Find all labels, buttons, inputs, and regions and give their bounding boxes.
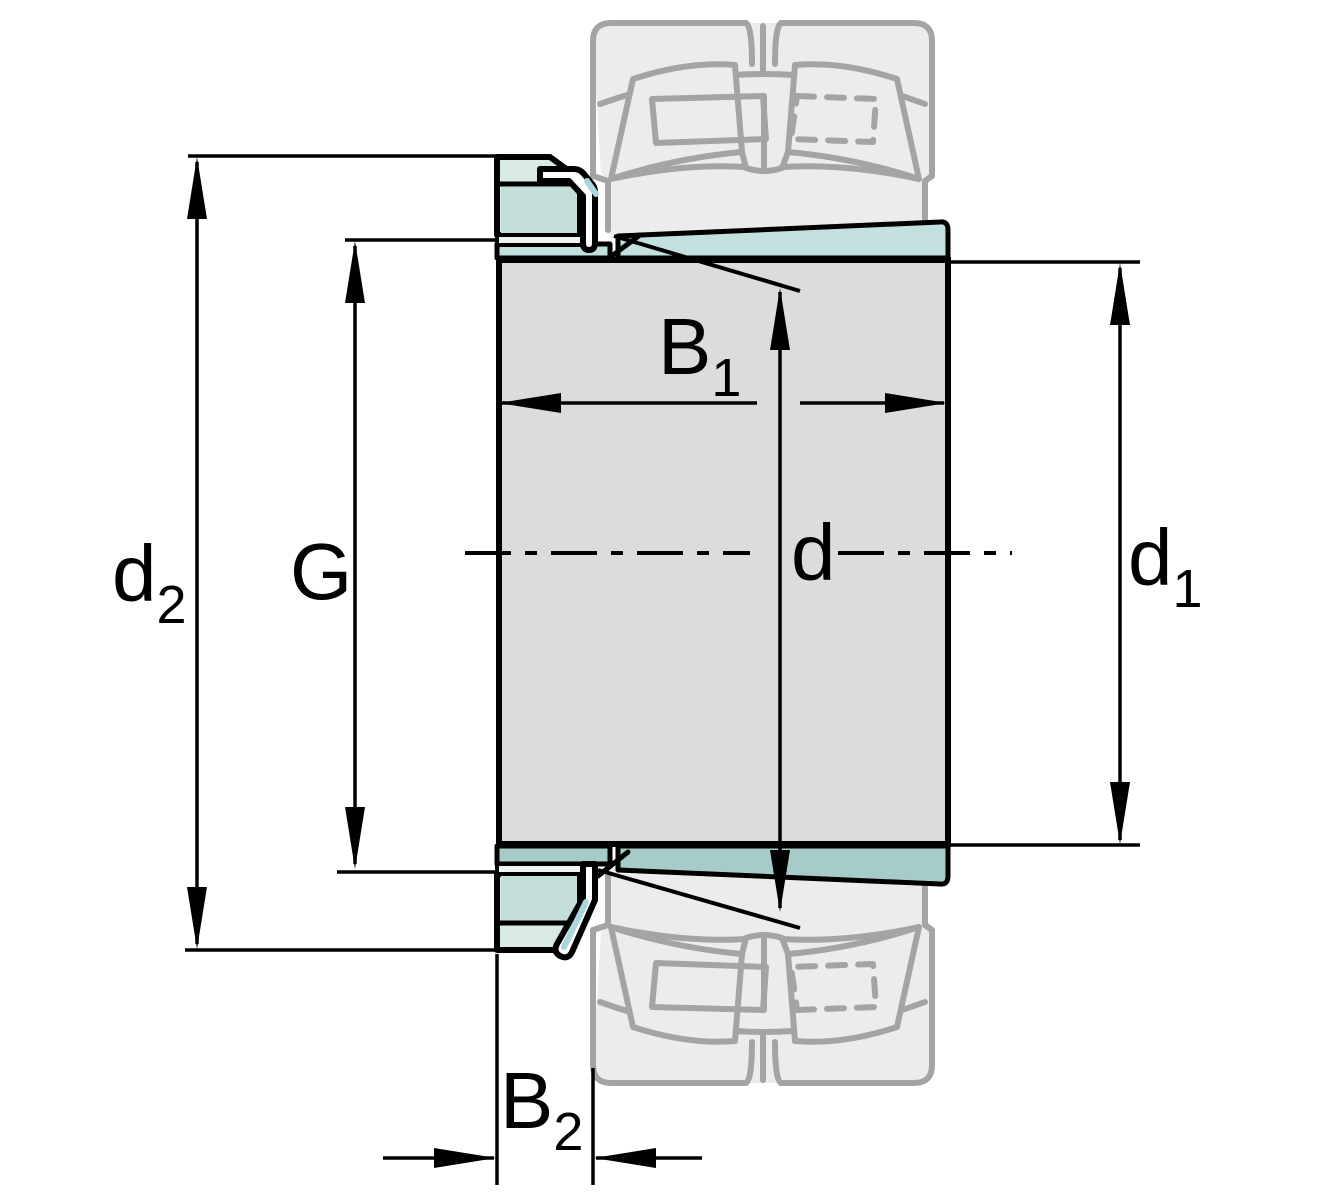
bearing-bottom-silhouette bbox=[593, 868, 932, 1083]
dimension-g: G bbox=[290, 240, 497, 872]
lock-washer-plate-top bbox=[497, 235, 590, 245]
bearing-top-silhouette bbox=[593, 23, 932, 238]
label-d2: d2 bbox=[112, 529, 187, 635]
lock-washer-plate-bottom bbox=[497, 864, 590, 874]
adapter-sleeve-drawing: d2 G B1 d d1 B2 bbox=[0, 0, 1330, 1200]
label-d: d bbox=[791, 508, 836, 597]
technical-drawing-canvas: d2 G B1 d d1 B2 bbox=[0, 0, 1330, 1200]
label-d1: d1 bbox=[1128, 513, 1203, 619]
lock-nut-bottom bbox=[497, 864, 595, 957]
label-g: G bbox=[290, 527, 352, 616]
lock-nut-top bbox=[497, 157, 596, 250]
label-b2: B2 bbox=[500, 1056, 583, 1162]
